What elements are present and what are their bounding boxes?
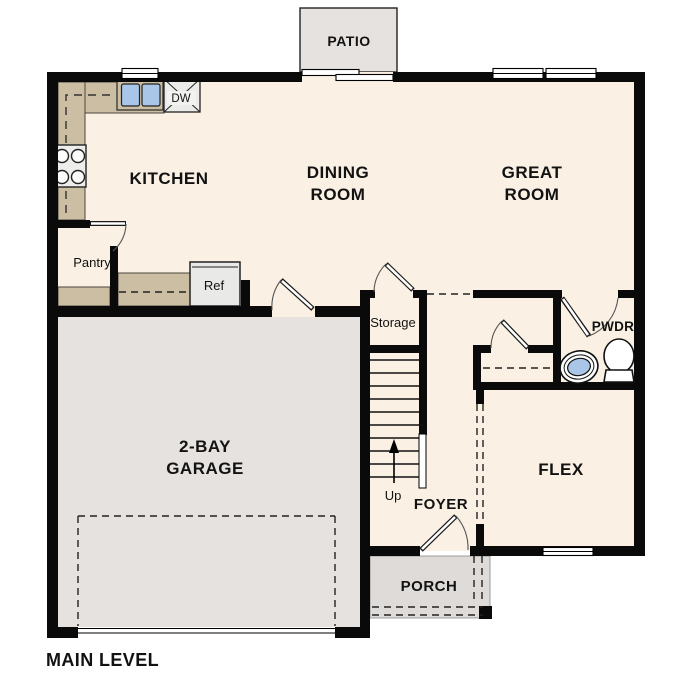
- wall-pwdr-north-right: [618, 290, 635, 298]
- counter-lower-run: [118, 273, 190, 306]
- wall-garage-stairs: [360, 290, 370, 638]
- wall-west: [47, 72, 58, 638]
- wall-flex-stub-bottom: [476, 524, 484, 546]
- wall-storage-north-left: [360, 290, 375, 298]
- wall-pantry-north: [47, 220, 90, 228]
- wall-garage-north: [47, 306, 370, 317]
- dishwasher-label: DW: [171, 93, 190, 105]
- wall-pwdr-south: [473, 382, 635, 390]
- garage-label-line1: 2-BAY: [179, 437, 231, 456]
- stair-railing: [419, 434, 426, 488]
- garage-label-line2: GARAGE: [166, 459, 244, 478]
- great-room-label-line2: ROOM: [505, 185, 560, 204]
- wall-pantry-east: [110, 246, 118, 308]
- flex-label: FLEX: [538, 460, 584, 479]
- refrigerator-label: Ref: [204, 278, 225, 293]
- toilet-icon: [604, 339, 634, 382]
- kitchen-label: KITCHEN: [129, 169, 208, 188]
- garage-door: [78, 627, 335, 638]
- floor-plan-page: DW Ref: [0, 0, 687, 687]
- wall-ref-stub: [241, 280, 250, 306]
- wall-closet-north-right: [528, 345, 553, 353]
- pantry-shelf: [58, 287, 110, 306]
- window-great-room-1: [493, 69, 543, 79]
- wall-pwdr-north-left: [473, 290, 562, 298]
- great-room-label-line1: GREAT: [502, 163, 563, 182]
- wall-storage-east: [419, 290, 427, 353]
- foyer-label: FOYER: [414, 496, 468, 513]
- window-great-room-2: [546, 69, 596, 79]
- page-title: MAIN LEVEL: [46, 650, 159, 670]
- floor-plan-svg: DW Ref: [0, 0, 687, 687]
- pantry-label: Pantry: [73, 255, 111, 270]
- wall-storage-stairs-divider: [363, 345, 427, 353]
- wall-east: [634, 72, 645, 556]
- patio-label: PATIO: [327, 33, 370, 49]
- pwdr-label: PWDR: [592, 319, 634, 334]
- dining-room-label-line2: ROOM: [311, 185, 366, 204]
- wall-flex-stub-top: [476, 390, 484, 404]
- window-flex: [543, 548, 593, 556]
- porch-label: PORCH: [401, 578, 458, 595]
- storage-label: Storage: [370, 315, 416, 330]
- porch-post: [479, 606, 492, 619]
- window-kitchen: [122, 69, 158, 79]
- sink-icon: [117, 80, 163, 110]
- up-label: Up: [385, 488, 402, 503]
- wall-stairs-east: [419, 353, 427, 435]
- dining-room-label-line1: DINING: [307, 163, 370, 182]
